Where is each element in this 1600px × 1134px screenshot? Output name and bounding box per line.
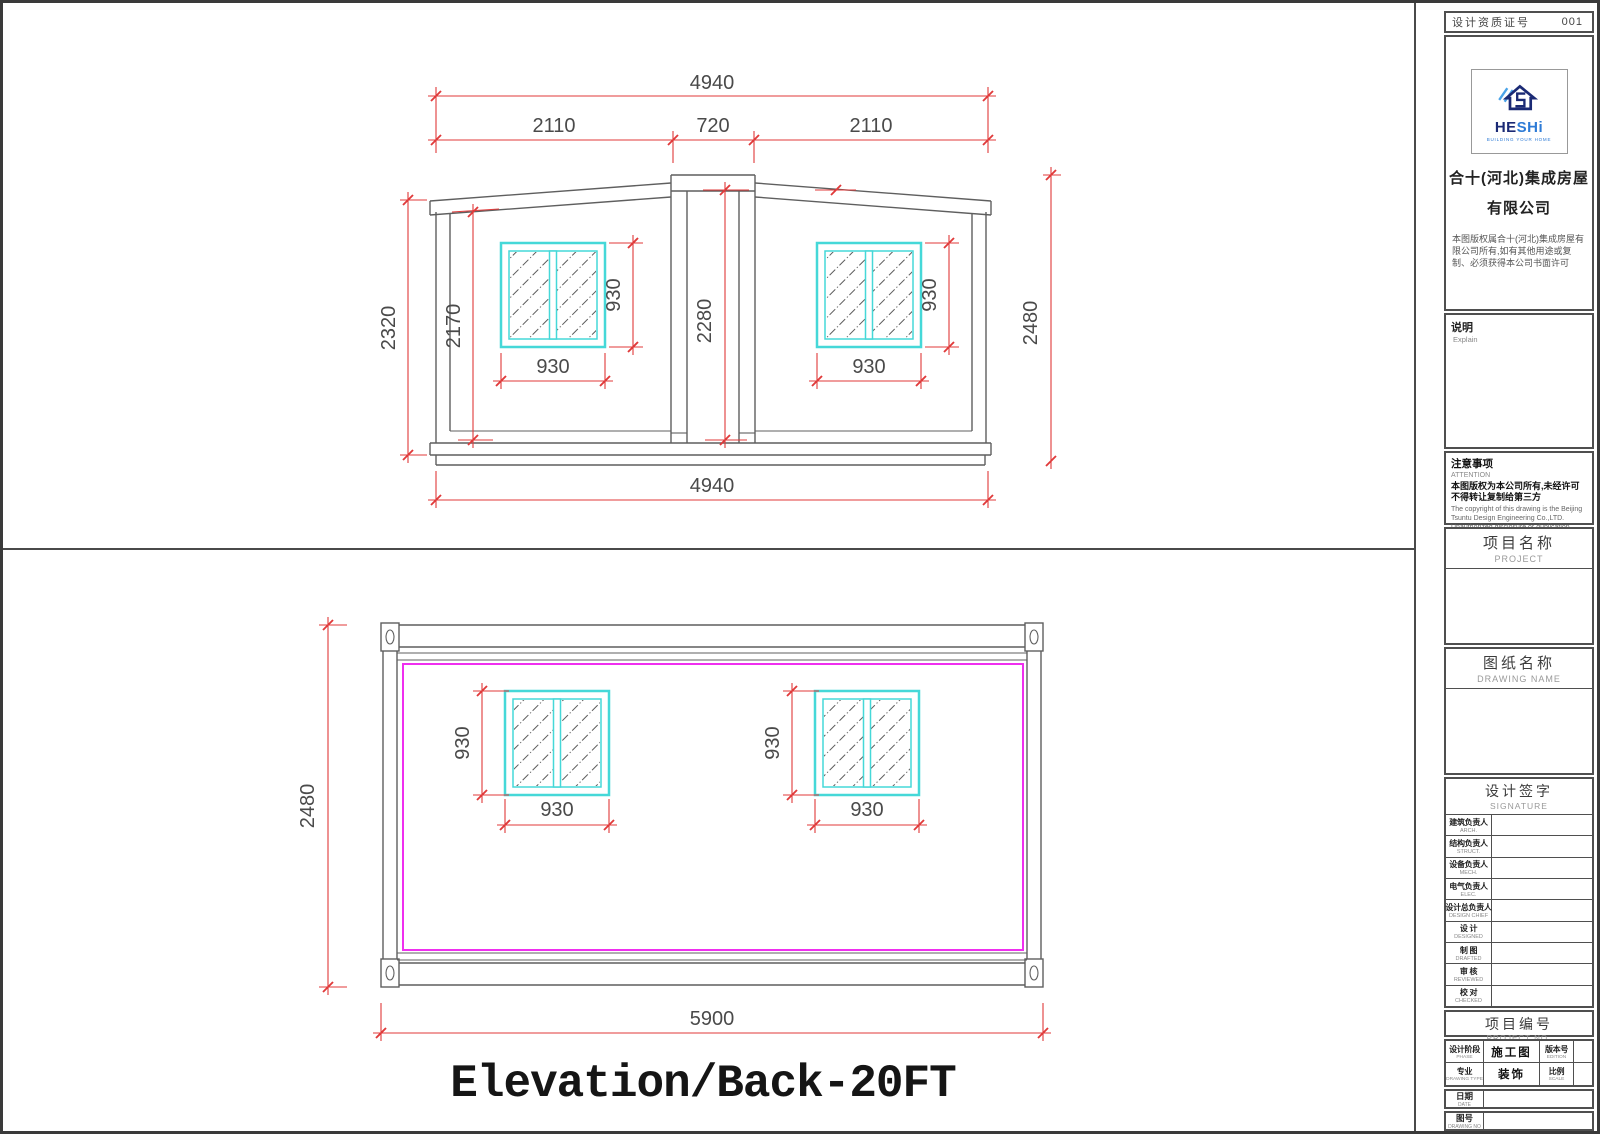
signature-cell: [1492, 879, 1592, 899]
explain-section: 说明 Explain: [1444, 313, 1594, 449]
company-logo: HESHi BUILDING YOUR HOME: [1471, 69, 1568, 154]
svg-text:4940: 4940: [690, 475, 735, 497]
drawing-name-label: 图纸名称: [1446, 652, 1592, 673]
wall-panel-outline: [403, 664, 1023, 950]
bottom-left-window: [505, 691, 609, 795]
drawing-no-row: 图号DRAWING NO: [1444, 1111, 1594, 1131]
svg-text:930: 930: [540, 799, 573, 821]
signature-label-en: SIGNATURE: [1446, 801, 1592, 811]
bottom-elevation-structure: [381, 623, 1043, 987]
project-label: 项目名称: [1446, 532, 1592, 553]
explain-label: 说明: [1451, 319, 1587, 335]
scale-label-cell: 比例SCALE: [1540, 1063, 1574, 1085]
signature-row-designed: 设 计DESIGNED: [1446, 921, 1592, 942]
signature-cell: [1492, 922, 1592, 942]
type-value-cell: 装饰: [1484, 1063, 1540, 1085]
dim-bottom-left-window-width: 930: [497, 799, 617, 833]
bottom-right-window: [815, 691, 919, 795]
drawing-name-label-en: DRAWING NAME: [1446, 674, 1592, 684]
explain-label-en: Explain: [1453, 335, 1587, 344]
svg-text:2110: 2110: [849, 115, 892, 137]
dim-left-outer-height: 2320: [378, 192, 427, 463]
company-name-line2: 有限公司: [1446, 197, 1592, 218]
company-name-line1: 合十(河北)集成房屋: [1446, 167, 1592, 188]
phase-value-cell: 施工图: [1484, 1041, 1540, 1063]
attention-notice-zh: 本图版权为本公司所有,未经许可不得转让复制给第三方: [1451, 481, 1587, 504]
top-left-window: [501, 243, 605, 347]
svg-text:2320: 2320: [378, 306, 400, 351]
company-copyright: 本图版权属合十(河北)集成房屋有限公司所有,如有其他用途或复制、必须获得本公司书…: [1452, 233, 1586, 269]
dim-top-right-window-width: 930: [809, 353, 929, 389]
svg-text:930: 930: [852, 356, 885, 378]
date-row: 日期DATE: [1444, 1089, 1594, 1109]
dim-bottom-total-width: 5900: [373, 1003, 1051, 1041]
signature-cell: [1492, 900, 1592, 920]
signature-row-reviewed: 审 核REVIEWED: [1446, 963, 1592, 984]
dim-left-inner-height: 2170: [443, 204, 499, 448]
signature-row-mech: 设备负责人MECH.: [1446, 857, 1592, 878]
heshi-house-icon: [1492, 81, 1546, 117]
logo-wordmark: HESHi: [1495, 120, 1543, 135]
svg-text:720: 720: [696, 115, 729, 137]
bottom-elevation: 2480 930 930: [297, 617, 1051, 1041]
project-label-en: PROJECT: [1446, 554, 1592, 564]
logo-tagline: BUILDING YOUR HOME: [1487, 137, 1552, 142]
svg-text:930: 930: [919, 278, 941, 311]
license-label: 设计资质证号: [1452, 14, 1530, 30]
project-name-section: 项目名称 PROJECT: [1444, 527, 1594, 645]
dim-top-bays: 2110 720 2110: [428, 115, 996, 163]
attention-label: 注意事项: [1451, 456, 1587, 471]
title-block: 设计资质证号 001 HESHi BUILDING YOUR HOME 合十(河…: [1444, 11, 1594, 1129]
svg-text:930: 930: [762, 726, 784, 759]
dim-top-left-window-width: 930: [493, 353, 613, 389]
svg-text:2110: 2110: [532, 115, 575, 137]
edition-value-cell: [1574, 1041, 1592, 1063]
signature-row-struct: 结构负责人STRUCT.: [1446, 835, 1592, 856]
dim-top-total-width: 4940: [428, 72, 996, 153]
dim-bottom-left-window-height: 930: [452, 683, 509, 803]
edition-label-cell: 版本号EDITION: [1540, 1041, 1574, 1063]
meta-grid: 设计阶段PHASE 施工图 版本号EDITION 专业DRAWING TYPE …: [1444, 1039, 1594, 1087]
drawing-canvas: 4940 2110 720 2110: [3, 3, 1420, 1131]
project-no-section: 项目编号 PROJECT NO.: [1444, 1010, 1594, 1037]
signature-cell: [1492, 986, 1592, 1006]
drawing-name-section: 图纸名称 DRAWING NAME: [1444, 647, 1594, 775]
project-no-label: 项目编号: [1485, 1016, 1553, 1032]
scale-value-cell: [1574, 1063, 1592, 1085]
svg-text:4940: 4940: [690, 72, 735, 94]
signature-section: 设计签字 SIGNATURE 建筑负责人ARCH. 结构负责人STRUCT. 设…: [1444, 777, 1594, 1008]
type-label-cell: 专业DRAWING TYPE: [1446, 1063, 1484, 1085]
signature-cell: [1492, 858, 1592, 878]
dim-top-left-window-height: 930: [603, 235, 643, 355]
phase-label-cell: 设计阶段PHASE: [1446, 1041, 1484, 1063]
signature-label: 设计签字: [1446, 781, 1592, 801]
signature-row-drafted: 制 图DRAFTED: [1446, 942, 1592, 963]
svg-text:930: 930: [536, 356, 569, 378]
svg-text:930: 930: [452, 726, 474, 759]
signature-row-design-chief: 设计总负责人DESIGN CHIEF: [1446, 899, 1592, 920]
signature-row-elec: 电气负责人ELEC.: [1446, 878, 1592, 899]
svg-text:2280: 2280: [694, 299, 716, 344]
license-number: 001: [1562, 16, 1583, 28]
signature-row-checked: 校 对CHECKED: [1446, 985, 1592, 1006]
drawing-no-value-cell: [1484, 1113, 1592, 1129]
signature-cell: [1492, 836, 1592, 856]
top-right-window: [817, 243, 921, 347]
attention-label-en: ATTENTION: [1451, 472, 1587, 479]
dim-top-right-window-height: 930: [919, 235, 959, 355]
svg-text:5900: 5900: [690, 1008, 735, 1030]
svg-text:2170: 2170: [443, 304, 465, 349]
dim-bottom-right-window-width: 930: [807, 799, 927, 833]
signature-cell: [1492, 943, 1592, 963]
company-section: HESHi BUILDING YOUR HOME 合十(河北)集成房屋 有限公司…: [1444, 35, 1594, 311]
drawing-sheet: 4940 2110 720 2110: [0, 0, 1600, 1134]
signature-cell: [1492, 815, 1592, 835]
drawing-name-field: [1446, 689, 1592, 773]
svg-text:930: 930: [850, 799, 883, 821]
sheet-title: Elevation/Back-20FT: [450, 1058, 956, 1110]
dim-top-total-width-bottom: 4940: [428, 471, 996, 508]
svg-text:2480: 2480: [1020, 301, 1042, 346]
svg-text:2480: 2480: [297, 784, 319, 829]
signature-row-arch: 建筑负责人ARCH.: [1446, 814, 1592, 835]
dim-bottom-right-window-height: 930: [762, 683, 819, 803]
attention-section: 注意事项 ATTENTION 本图版权为本公司所有,未经许可不得转让复制给第三方…: [1444, 451, 1594, 525]
top-elevation: 4940 2110 720 2110: [378, 72, 1061, 508]
svg-text:930: 930: [603, 278, 625, 311]
license-number-row: 设计资质证号 001: [1444, 11, 1594, 33]
signature-cell: [1492, 964, 1592, 984]
dim-center-height: 2280: [694, 182, 749, 448]
date-value-cell: [1484, 1091, 1592, 1107]
project-name-field: [1446, 569, 1592, 643]
dim-bottom-height: 2480: [297, 617, 347, 995]
